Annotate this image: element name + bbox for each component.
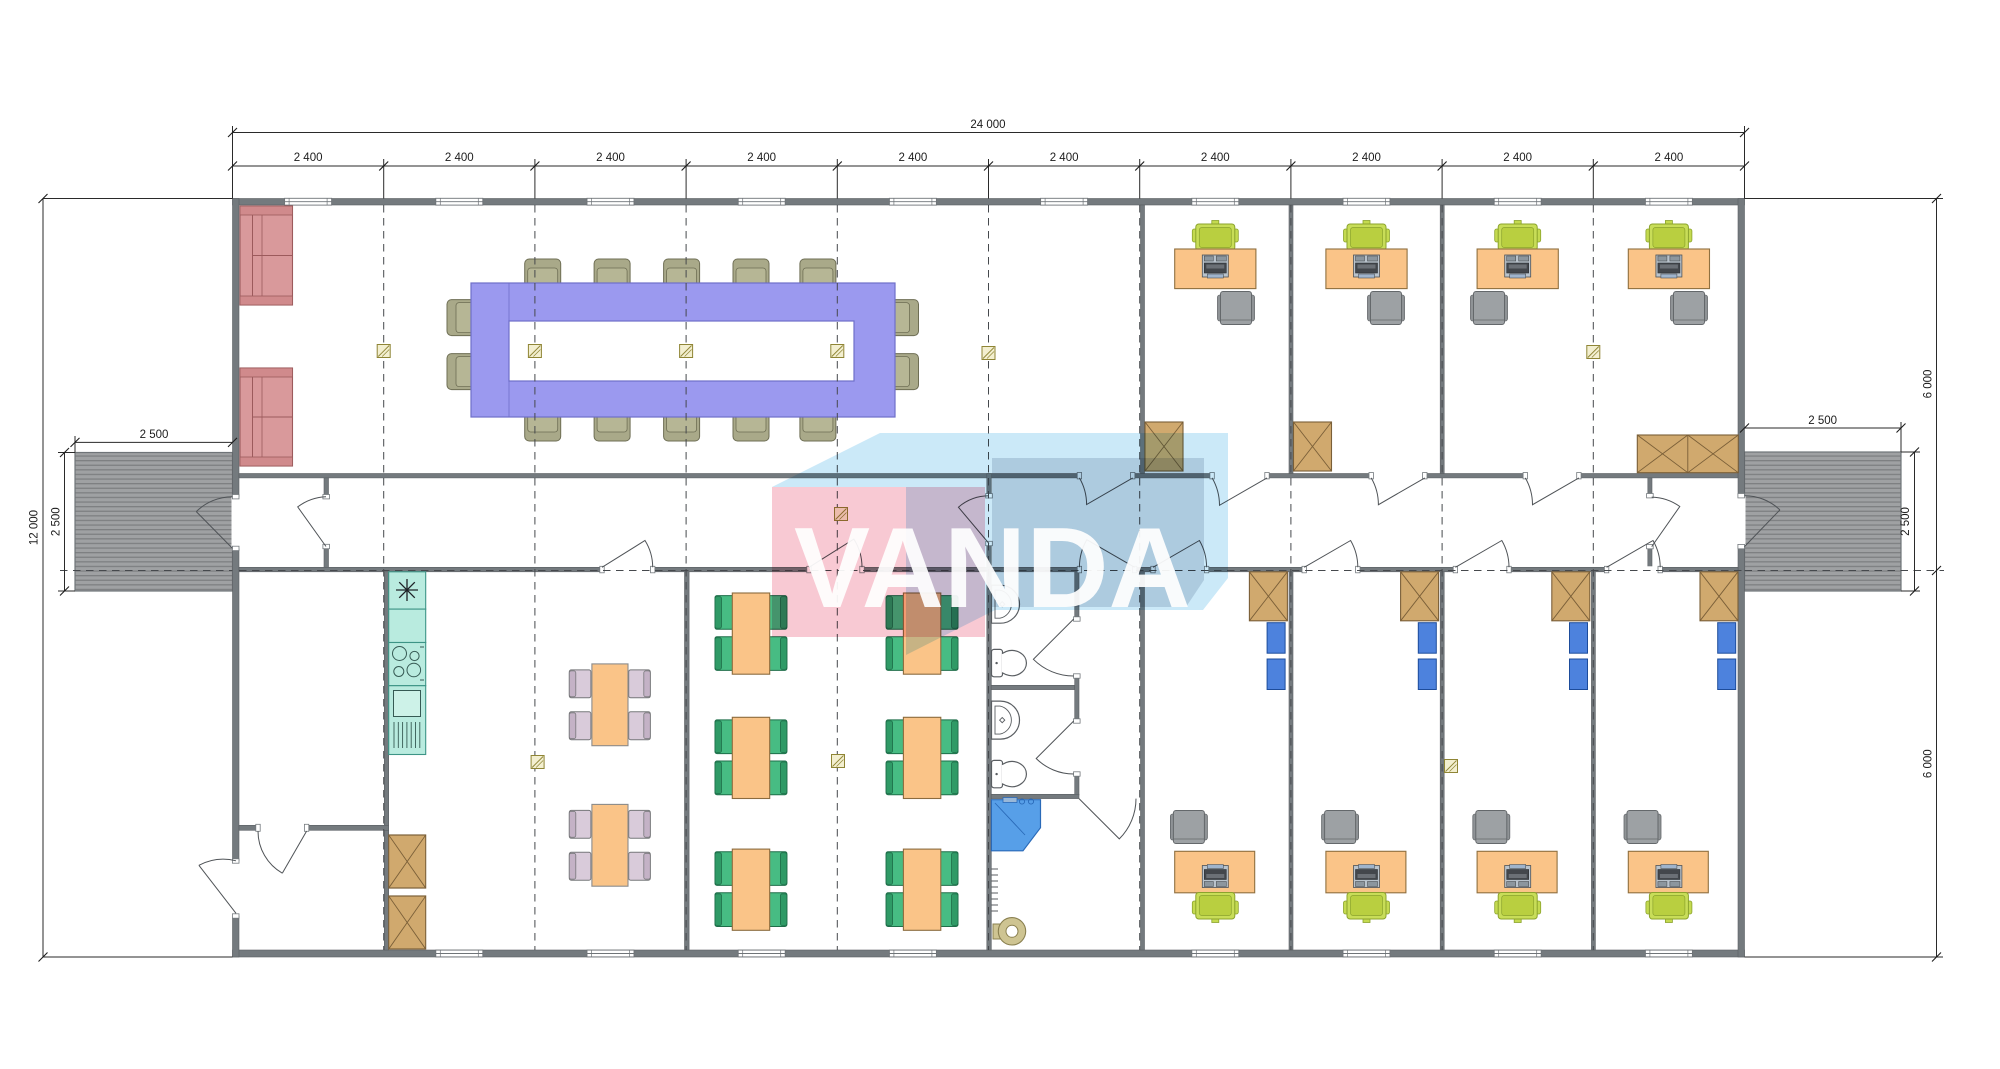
svg-text:2 500: 2 500 <box>1900 507 1912 536</box>
svg-text:2 400: 2 400 <box>294 152 323 164</box>
svg-text:2 400: 2 400 <box>747 152 776 164</box>
svg-text:VANDA: VANDA <box>794 505 1191 632</box>
svg-text:2 400: 2 400 <box>1655 152 1684 164</box>
svg-text:2 400: 2 400 <box>1503 152 1532 164</box>
svg-text:2 400: 2 400 <box>1352 152 1381 164</box>
svg-text:2 400: 2 400 <box>445 152 474 164</box>
svg-text:2 500: 2 500 <box>1808 415 1837 427</box>
svg-text:2 400: 2 400 <box>1201 152 1230 164</box>
svg-text:2 400: 2 400 <box>1050 152 1079 164</box>
svg-text:2 500: 2 500 <box>51 507 63 536</box>
svg-text:2 400: 2 400 <box>899 152 928 164</box>
svg-text:24 000: 24 000 <box>970 119 1005 131</box>
svg-text:2 400: 2 400 <box>596 152 625 164</box>
svg-text:6 000: 6 000 <box>1923 370 1935 399</box>
svg-text:2 500: 2 500 <box>140 429 169 441</box>
svg-text:6 000: 6 000 <box>1923 749 1935 778</box>
svg-text:12 000: 12 000 <box>29 510 41 545</box>
